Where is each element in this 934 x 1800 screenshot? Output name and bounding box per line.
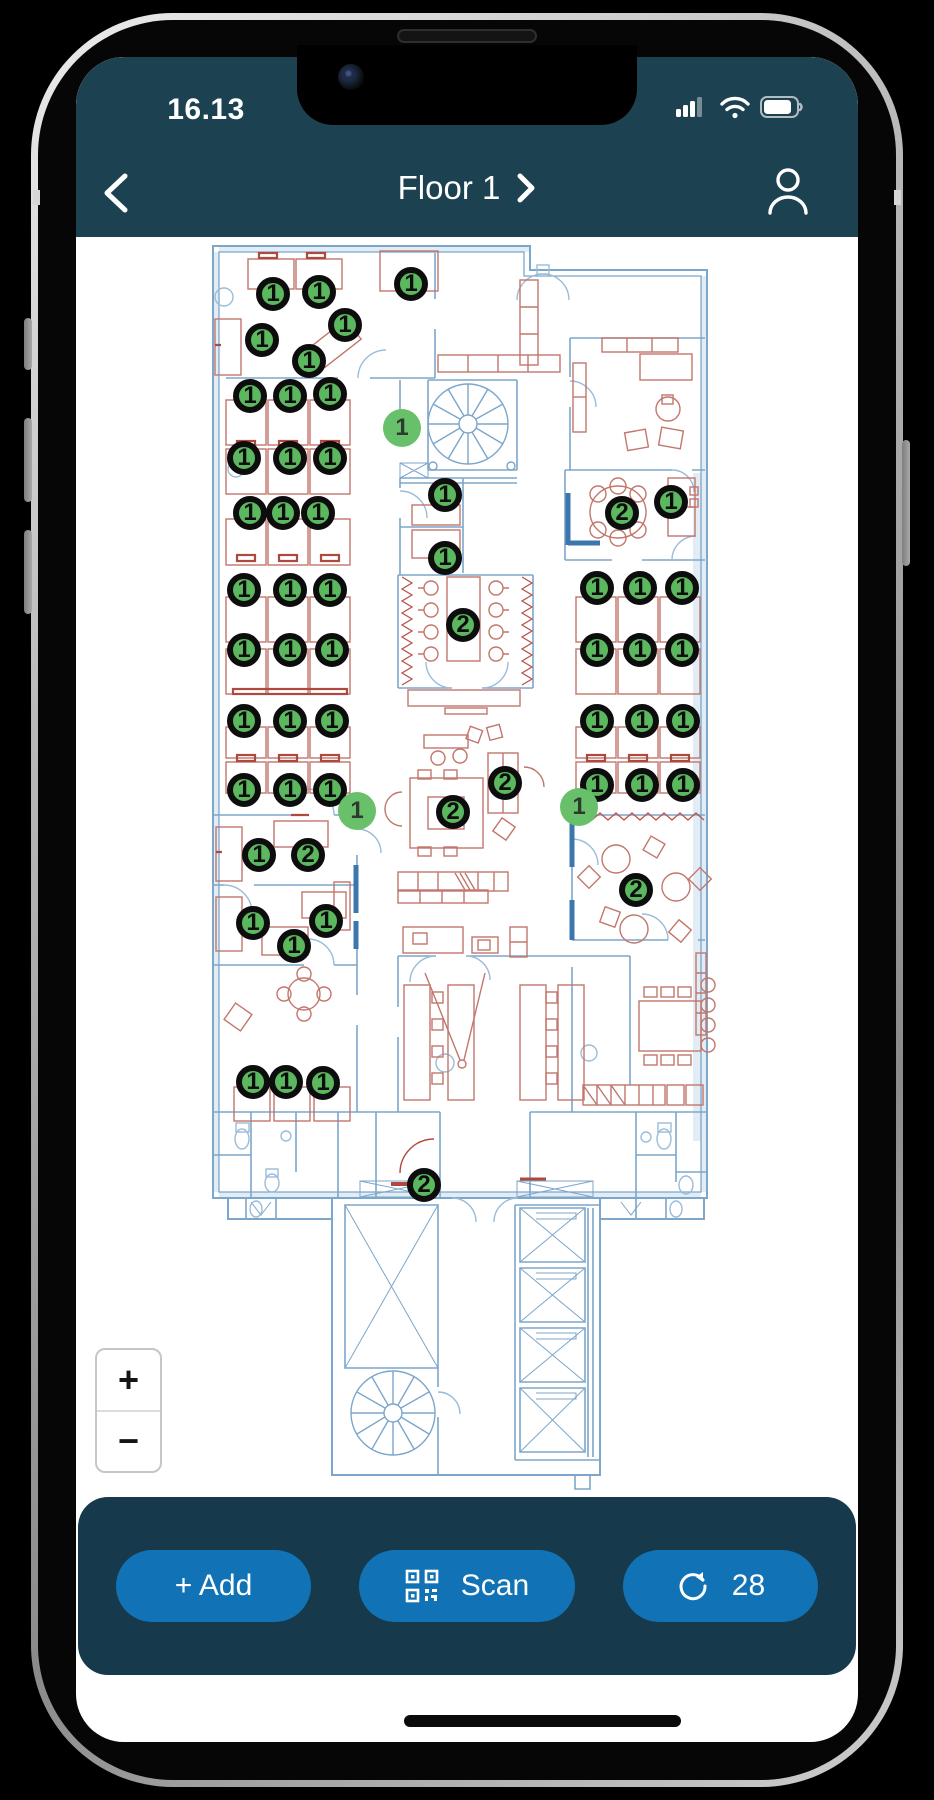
page-title: Floor 1: [398, 169, 501, 207]
map-marker[interactable]: 1: [273, 704, 307, 738]
bottom-toolbar: + Add Scan: [78, 1497, 856, 1675]
chevron-right-icon: [516, 173, 536, 203]
map-marker[interactable]: 1: [256, 277, 290, 311]
map-marker[interactable]: 1: [328, 308, 362, 342]
map-marker[interactable]: 1: [227, 573, 261, 607]
map-marker[interactable]: 1: [227, 633, 261, 667]
map-marker[interactable]: 1: [227, 773, 261, 807]
zoom-controls: + −: [95, 1348, 162, 1473]
map-marker[interactable]: 1: [233, 379, 267, 413]
front-camera: [338, 64, 364, 90]
map-marker[interactable]: 1: [580, 633, 614, 667]
map-marker[interactable]: 2: [436, 795, 470, 829]
map-marker[interactable]: 1: [315, 633, 349, 667]
scan-button-label: Scan: [461, 1569, 529, 1603]
map-marker[interactable]: 1: [665, 633, 699, 667]
map-marker[interactable]: 1: [273, 633, 307, 667]
map-marker[interactable]: 1: [338, 792, 376, 830]
map-marker[interactable]: 1: [313, 377, 347, 411]
phone-screen: 16.13: [76, 57, 858, 1742]
map-marker[interactable]: 1: [666, 704, 700, 738]
map-marker[interactable]: 1: [625, 768, 659, 802]
map-marker[interactable]: 1: [269, 1065, 303, 1099]
profile-button[interactable]: [762, 163, 814, 221]
zoom-out-button[interactable]: −: [97, 1412, 160, 1472]
map-marker[interactable]: 1: [623, 633, 657, 667]
sync-count: 28: [732, 1569, 765, 1603]
map-marker[interactable]: 1: [236, 1065, 270, 1099]
map-marker[interactable]: 1: [306, 1066, 340, 1100]
earpiece-speaker: [397, 29, 537, 43]
battery-icon: [760, 95, 804, 119]
volume-down-button: [24, 530, 32, 614]
sync-refresh-icon: [676, 1569, 710, 1603]
map-marker[interactable]: 1: [654, 485, 688, 519]
qr-code-icon: [405, 1569, 439, 1603]
map-marker[interactable]: 1: [313, 573, 347, 607]
power-button: [902, 440, 910, 566]
map-marker[interactable]: 1: [227, 704, 261, 738]
map-marker[interactable]: 1: [245, 323, 279, 357]
map-marker[interactable]: 1: [580, 571, 614, 605]
map-marker[interactable]: 1: [560, 788, 598, 826]
map-marker[interactable]: 2: [605, 496, 639, 530]
status-icons: [676, 95, 804, 119]
map-marker[interactable]: 1: [302, 275, 336, 309]
cellular-signal-icon: [676, 95, 710, 119]
antenna-line: [33, 190, 40, 205]
map-marker[interactable]: 1: [394, 267, 428, 301]
map-marker[interactable]: 1: [236, 906, 270, 940]
antenna-line: [894, 190, 901, 205]
map-marker[interactable]: 1: [273, 441, 307, 475]
zoom-in-button[interactable]: +: [97, 1350, 160, 1412]
map-marker[interactable]: 1: [428, 541, 462, 575]
volume-up-button: [24, 418, 32, 502]
phone-mockup: 16.13: [0, 0, 934, 1800]
floor-plan-map[interactable]: 1111111111111111112111111111111121111111…: [76, 237, 858, 1500]
map-marker[interactable]: 1: [233, 496, 267, 530]
map-marker[interactable]: 1: [428, 478, 462, 512]
map-marker[interactable]: 1: [301, 496, 335, 530]
status-time: 16.13: [146, 93, 266, 127]
map-marker[interactable]: 1: [623, 571, 657, 605]
add-button-label: + Add: [175, 1569, 253, 1603]
map-marker[interactable]: 1: [227, 441, 261, 475]
map-marker[interactable]: 2: [619, 873, 653, 907]
map-marker[interactable]: 1: [292, 344, 326, 378]
map-marker[interactable]: 1: [242, 838, 276, 872]
map-marker[interactable]: 1: [666, 768, 700, 802]
wifi-icon: [720, 95, 750, 119]
map-marker[interactable]: 2: [291, 838, 325, 872]
mute-switch: [24, 318, 32, 370]
add-button[interactable]: + Add: [116, 1550, 311, 1622]
home-indicator[interactable]: [404, 1715, 681, 1727]
marker-layer: 1111111111111111112111111111111121111111…: [76, 237, 858, 1500]
map-marker[interactable]: 1: [273, 379, 307, 413]
map-marker[interactable]: 1: [277, 929, 311, 963]
map-marker[interactable]: 2: [407, 1168, 441, 1202]
map-marker[interactable]: 1: [309, 904, 343, 938]
person-icon: [766, 167, 810, 217]
map-marker[interactable]: 1: [580, 704, 614, 738]
map-marker[interactable]: 1: [313, 441, 347, 475]
map-marker[interactable]: 2: [488, 766, 522, 800]
sync-button[interactable]: 28: [623, 1550, 818, 1622]
map-marker[interactable]: 1: [266, 496, 300, 530]
map-marker[interactable]: 1: [625, 704, 659, 738]
map-marker[interactable]: 1: [273, 773, 307, 807]
scan-button[interactable]: Scan: [359, 1550, 575, 1622]
map-marker[interactable]: 1: [665, 571, 699, 605]
map-marker[interactable]: 2: [446, 608, 480, 642]
floor-selector[interactable]: Floor 1: [76, 169, 858, 207]
map-marker[interactable]: 1: [273, 573, 307, 607]
map-marker[interactable]: 1: [315, 704, 349, 738]
map-marker[interactable]: 1: [383, 409, 421, 447]
